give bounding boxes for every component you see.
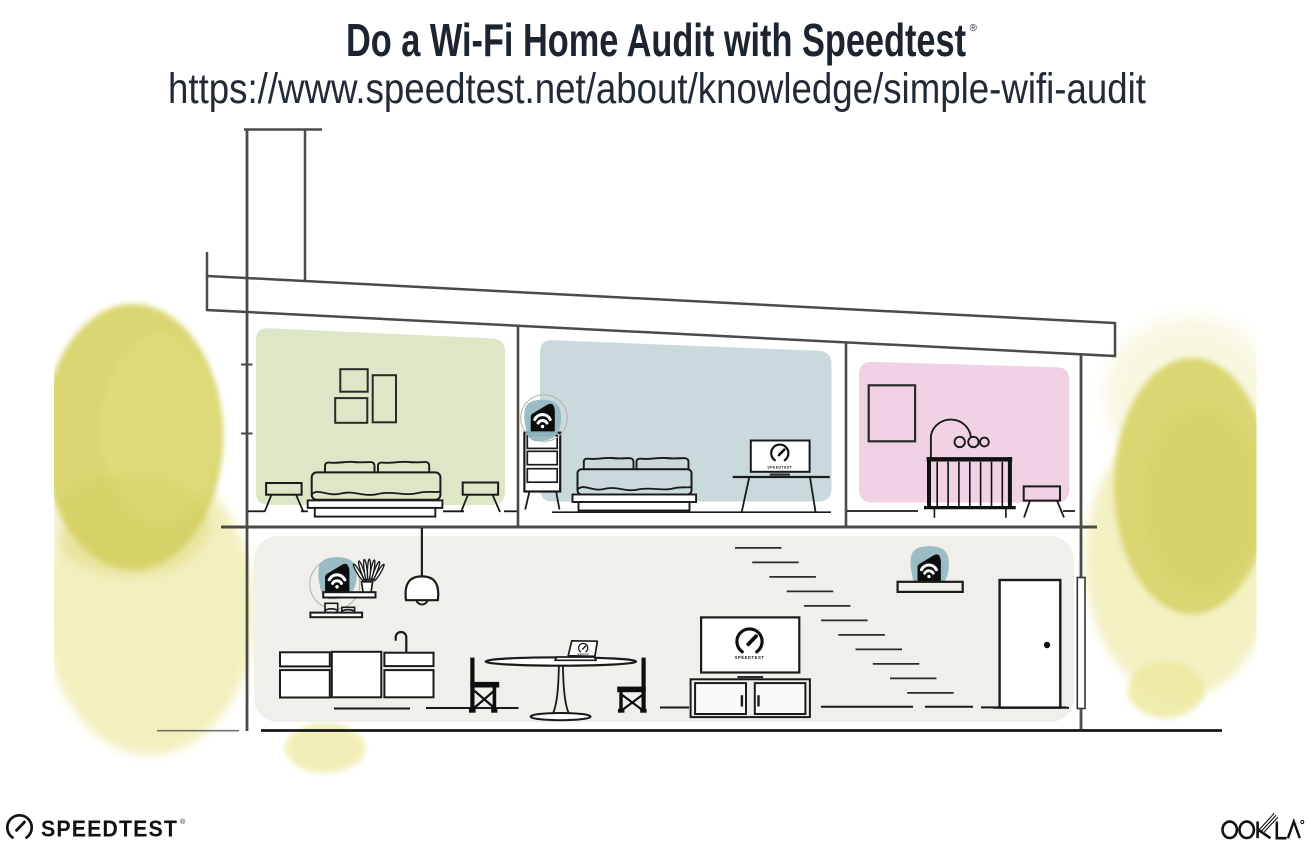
svg-text:®: ®	[180, 818, 186, 826]
svg-text:®: ®	[970, 23, 978, 34]
svg-text:https://www.speedtest.net/abou: https://www.speedtest.net/about/knowledg…	[168, 65, 1146, 113]
svg-text:Do a Wi-Fi Home Audit with Spe: Do a Wi-Fi Home Audit with Speedtest	[346, 14, 966, 66]
svg-text:SPEEDTEST: SPEEDTEST	[767, 465, 792, 469]
svg-text:SPEEDTEST: SPEEDTEST	[577, 654, 590, 656]
svg-text:SPEEDTEST: SPEEDTEST	[41, 816, 178, 842]
svg-text:SPEEDTEST: SPEEDTEST	[735, 655, 765, 660]
